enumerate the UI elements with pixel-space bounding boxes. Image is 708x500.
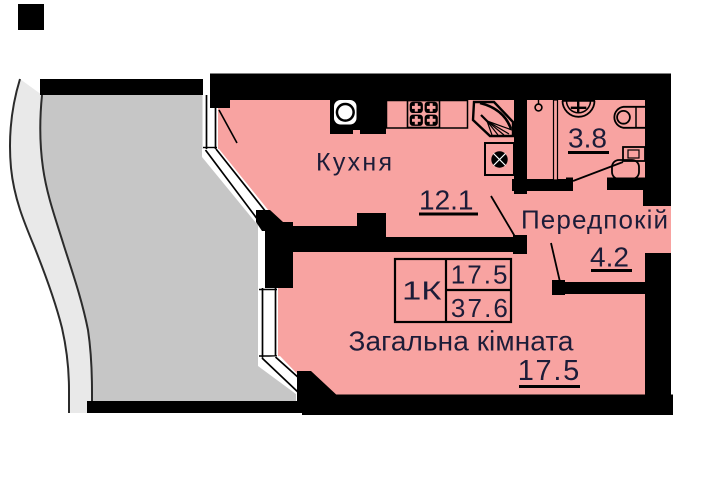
svg-text:17.5: 17.5: [451, 259, 510, 289]
svg-text:37.6: 37.6: [451, 293, 508, 323]
svg-text:Передпокій: Передпокій: [521, 205, 668, 235]
svg-text:Кухня: Кухня: [316, 149, 392, 177]
svg-text:Загальна кімната: Загальна кімната: [349, 325, 574, 356]
svg-text:12.1: 12.1: [419, 184, 474, 215]
svg-text:4.2: 4.2: [590, 241, 629, 272]
svg-text:17.5: 17.5: [518, 355, 581, 387]
svg-text:1К: 1К: [402, 276, 442, 306]
svg-text:3.8: 3.8: [568, 122, 607, 153]
